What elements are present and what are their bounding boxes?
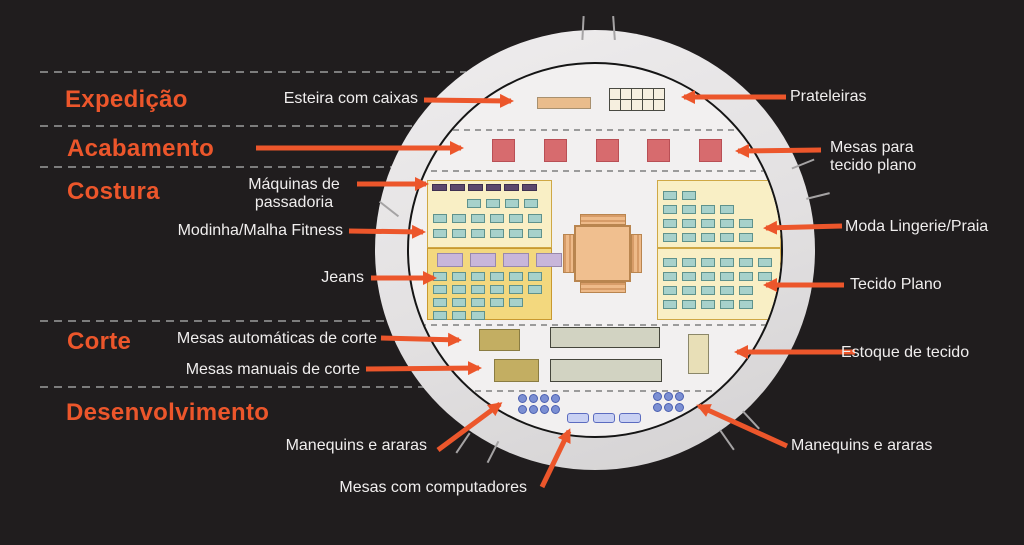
sewing-machine-row [433, 311, 549, 320]
shelf-cell [632, 100, 642, 110]
sewing-machine [490, 298, 504, 307]
pressing-machine [432, 184, 447, 191]
cutting-table-long [550, 327, 660, 348]
sewing-machine [720, 258, 734, 267]
mannequin [653, 403, 662, 412]
sewing-machine [682, 219, 696, 228]
flat-fabric-table [647, 139, 670, 162]
floor-divider [409, 390, 781, 392]
shelf-cell [654, 89, 664, 99]
label-computadores: Mesas com computadores [310, 479, 527, 497]
zone-divider [40, 166, 392, 168]
label-esteira: Esteira com caixas [262, 90, 418, 108]
mannequin [518, 394, 527, 403]
mannequin [664, 392, 673, 401]
sewing-machine [433, 272, 447, 281]
mannequin [551, 394, 560, 403]
label-prateleiras: Prateleiras [790, 88, 866, 106]
pressing-machine [468, 184, 483, 191]
shelf-cell [632, 89, 642, 99]
mannequin [675, 392, 684, 401]
sewing-machine [720, 233, 734, 242]
cutting-table-long [550, 359, 662, 382]
sewing-machine-row [663, 191, 778, 200]
sewing-machine-row [433, 272, 549, 281]
sewing-machine [471, 229, 485, 238]
sewing-machine [682, 233, 696, 242]
jeans-table [470, 253, 496, 267]
jeans-table [503, 253, 529, 267]
mannequin [664, 403, 673, 412]
flat-fabric-table [699, 139, 722, 162]
central-table [574, 225, 631, 282]
sewing-machine [528, 285, 542, 294]
sewing-machine [452, 298, 466, 307]
sewing-machine [682, 191, 696, 200]
shelf-cell [610, 89, 620, 99]
label-manequins-right: Manequins e araras [791, 437, 932, 455]
tick-mark [719, 430, 734, 451]
computer-desk [567, 413, 589, 423]
tick-mark [806, 192, 830, 200]
sewing-machine [467, 199, 481, 208]
label-line: Máquinas de [238, 176, 350, 194]
shelving-unit [609, 88, 665, 111]
sewing-area-jeans [427, 248, 552, 320]
sewing-machine [701, 272, 715, 281]
sewing-machine [682, 300, 696, 309]
label-estoque: Estoque de tecido [841, 344, 969, 362]
label-line: tecido plano [830, 157, 916, 175]
jeans-table [437, 253, 463, 267]
sewing-machine [663, 205, 677, 214]
floor-divider [409, 129, 781, 131]
shelf-cell [643, 89, 653, 99]
flat-fabric-table [492, 139, 515, 162]
sewing-machine [509, 285, 523, 294]
pressing-machine [504, 184, 519, 191]
sewing-machine [452, 285, 466, 294]
finishing-tables-row [492, 139, 722, 162]
sewing-machine-row [663, 258, 778, 267]
tick-mark [612, 16, 616, 40]
sewing-machine [682, 286, 696, 295]
sewing-machine-row [663, 286, 778, 295]
label-mesas-automaticas: Mesas automáticas de corte [143, 330, 377, 348]
sewing-machine [663, 272, 677, 281]
sewing-machine [663, 219, 677, 228]
sewing-machine [739, 233, 753, 242]
zone-label-costura: Costura [67, 178, 160, 206]
mannequin [540, 394, 549, 403]
sewing-machine [490, 214, 504, 223]
label-line: passadoria [238, 194, 350, 212]
sewing-machine [739, 272, 753, 281]
label-mesas-manuais: Mesas manuais de corte [168, 361, 360, 379]
sewing-machines-group [663, 258, 778, 309]
sewing-machine-row [663, 219, 778, 228]
sewing-machine [739, 300, 753, 309]
shelf-cell [621, 89, 631, 99]
sewing-machine [433, 229, 447, 238]
conveyor-with-boxes [537, 97, 591, 109]
pressing-machine [486, 184, 501, 191]
jeans-table [536, 253, 562, 267]
sewing-machines-group [663, 191, 778, 242]
label-line: Mesas para [830, 139, 916, 157]
sewing-machine-row [663, 205, 778, 214]
sewing-machine [739, 219, 753, 228]
mannequin [518, 405, 527, 414]
sewing-machine-row [663, 300, 778, 309]
manual-cutting-table [494, 359, 539, 382]
sewing-machine [701, 300, 715, 309]
sewing-area-modinha [427, 180, 552, 248]
jeans-tables-row [437, 253, 562, 267]
sewing-machine [509, 214, 523, 223]
sewing-machine [452, 229, 466, 238]
sewing-machine-row [663, 272, 778, 281]
label-modinha: Modinha/Malha Fitness [140, 222, 343, 240]
mannequin [529, 405, 538, 414]
sewing-machine [528, 214, 542, 223]
zone-label-expedicao: Expedição [65, 86, 188, 114]
factory-layout-infographic: Expedição Acabamento Costura Corte Desen… [0, 0, 1024, 545]
sewing-area-lingerie [657, 180, 781, 248]
mannequin [540, 405, 549, 414]
sewing-machine [509, 272, 523, 281]
sewing-machine [663, 233, 677, 242]
sewing-machines-group [433, 272, 549, 320]
label-tecido-plano: Tecido Plano [850, 276, 942, 294]
tick-mark [455, 432, 470, 453]
sewing-machine [682, 258, 696, 267]
sewing-machine [505, 199, 519, 208]
sewing-machine [663, 258, 677, 267]
label-moda-lingerie: Moda Lingerie/Praia [845, 218, 988, 236]
sewing-machine [452, 272, 466, 281]
sewing-machine-row [433, 298, 549, 307]
pressing-machine [522, 184, 537, 191]
pressing-machines-row [432, 184, 537, 191]
shelf-cell [654, 100, 664, 110]
sewing-machines-group [433, 199, 549, 238]
floor-divider [409, 324, 781, 326]
sewing-machine [471, 272, 485, 281]
shelf-cell [643, 100, 653, 110]
sewing-machine [452, 214, 466, 223]
mannequin [675, 403, 684, 412]
sewing-machine [720, 219, 734, 228]
zone-divider [40, 386, 424, 388]
mannequin [653, 392, 662, 401]
sewing-machine [433, 298, 447, 307]
sewing-machine [490, 285, 504, 294]
sewing-machine [758, 258, 772, 267]
label-manequins-left: Manequins e araras [265, 437, 427, 455]
zone-divider [40, 125, 414, 127]
sewing-machine [452, 311, 466, 320]
sewing-machine [524, 199, 538, 208]
zone-label-desenvolvimento: Desenvolvimento [66, 399, 269, 427]
computer-desk [619, 413, 641, 423]
sewing-machine [739, 258, 753, 267]
sewing-machine [739, 286, 753, 295]
central-table-flap [563, 234, 574, 273]
mannequin [529, 394, 538, 403]
sewing-machine [433, 285, 447, 294]
mannequin [551, 405, 560, 414]
zone-label-corte: Corte [67, 328, 131, 356]
sewing-machine [490, 272, 504, 281]
sewing-machine-row [433, 229, 549, 238]
central-table-flap [631, 234, 642, 273]
sewing-machine [758, 272, 772, 281]
sewing-machine [682, 272, 696, 281]
fabric-stock [688, 334, 709, 374]
label-maquinas-passadoria: Máquinas de passadoria [238, 176, 350, 211]
sewing-machine [701, 258, 715, 267]
central-table-flap [580, 282, 626, 293]
mannequins-cluster [518, 394, 560, 414]
sewing-machine [663, 286, 677, 295]
sewing-machine [528, 229, 542, 238]
sewing-machine [509, 229, 523, 238]
sewing-machine [720, 272, 734, 281]
sewing-machine [701, 219, 715, 228]
sewing-machine [509, 298, 523, 307]
sewing-machine [720, 286, 734, 295]
label-mesas-tecido: Mesas para tecido plano [830, 139, 916, 174]
sewing-machine [433, 214, 447, 223]
sewing-machine [663, 300, 677, 309]
mannequins-cluster [653, 392, 684, 412]
sewing-machine [433, 311, 447, 320]
sewing-machine-row [467, 199, 549, 208]
computer-desks-row [567, 413, 641, 423]
sewing-machine [701, 205, 715, 214]
sewing-machine [528, 272, 542, 281]
sewing-machine [471, 311, 485, 320]
shelf-cell [621, 100, 631, 110]
sewing-machine-row [433, 214, 549, 223]
sewing-machine [701, 233, 715, 242]
sewing-machine-row [663, 233, 778, 242]
floor-divider [409, 170, 781, 172]
sewing-machine-row [433, 285, 549, 294]
sewing-machine [720, 205, 734, 214]
computer-desk [593, 413, 615, 423]
sewing-machine [682, 205, 696, 214]
zone-divider [40, 320, 388, 322]
flat-fabric-table [596, 139, 619, 162]
sewing-machine [701, 286, 715, 295]
tick-mark [742, 411, 760, 430]
sewing-machine [663, 191, 677, 200]
sewing-machine [471, 285, 485, 294]
floorplan-circle [407, 62, 783, 438]
sewing-area-tecido-plano [657, 248, 781, 320]
flat-fabric-table [544, 139, 567, 162]
automatic-cutting-table [479, 329, 520, 351]
sewing-machine [490, 229, 504, 238]
pressing-machine [450, 184, 465, 191]
sewing-machine [471, 298, 485, 307]
shelf-cell [610, 100, 620, 110]
label-jeans: Jeans [264, 269, 364, 287]
sewing-machine [471, 214, 485, 223]
zone-label-acabamento: Acabamento [67, 135, 214, 163]
sewing-machine [720, 300, 734, 309]
zone-divider [40, 71, 466, 73]
sewing-machine [486, 199, 500, 208]
central-table-flap [580, 214, 626, 225]
